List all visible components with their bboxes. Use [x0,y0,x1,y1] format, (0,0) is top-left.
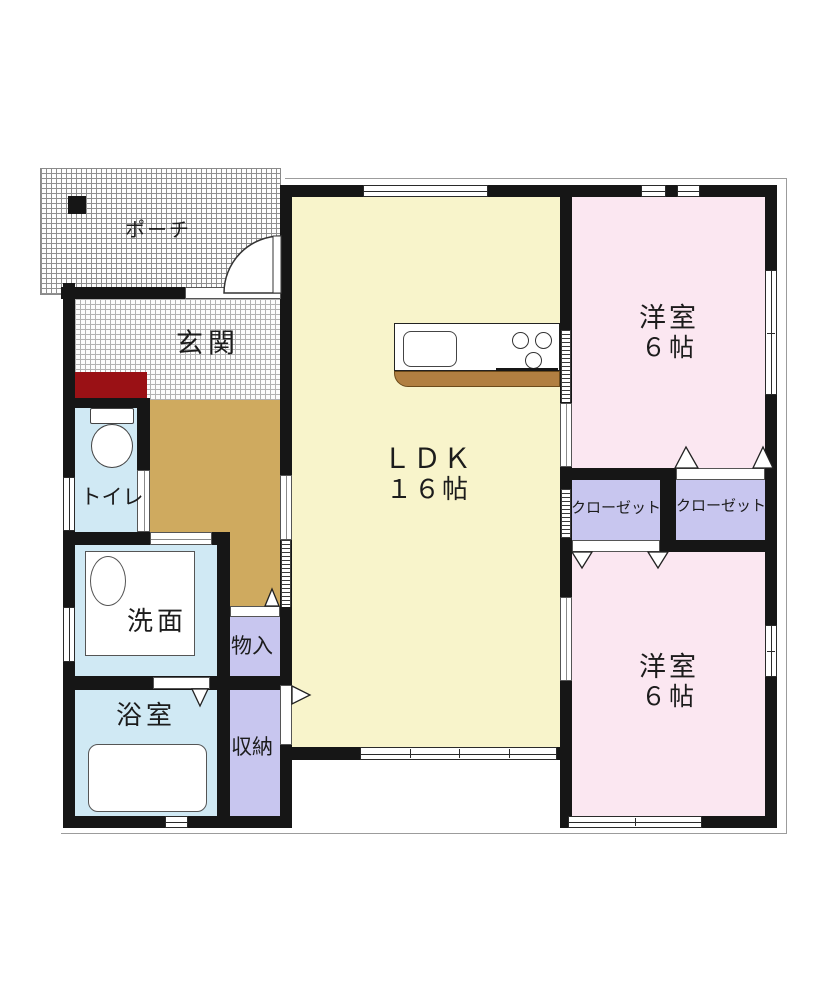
window-toilet-left [63,477,75,531]
label-bedroom-top-size: ６帖 [639,334,699,363]
door-bathroom [153,677,210,689]
wall-washroom-right [217,532,230,690]
label-ldk-name: ＬＤＫ [383,443,473,475]
window-bedroom-bottom-south [568,816,702,828]
label-bedroom-top: 洋室 ６帖 [639,303,699,363]
wall-top [280,185,777,197]
shoe-cabinet [75,372,147,398]
label-bedroom-bottom: 洋室 ６帖 [639,652,699,712]
label-closet-left: クローゼット [571,499,661,516]
label-bedroom-top-name: 洋室 [639,303,699,334]
bathtub [88,744,207,812]
entrance-threshold [185,287,281,299]
door-rail-closet-left [561,489,571,538]
door-ldk-bedroom-bottom [560,597,572,681]
window-bedroom-top-right [765,270,777,395]
wall-porch-genkan [61,287,185,299]
door-storage-small [230,606,280,617]
label-toilet: トイレ [81,486,144,510]
eave-line-bottom [61,833,787,834]
kitchen-sink [403,331,457,367]
toilet-tank [90,408,134,424]
kitchen-counter-wood [394,371,560,387]
label-porch: ポーチ [125,220,191,243]
label-storage-tall: 収納 [231,736,273,760]
door-closet-right [676,468,765,480]
label-washroom: 洗面 [127,607,187,637]
door-rail-bedroom-top [561,330,571,402]
eave-line-right [786,178,787,834]
stove-burner-2 [535,332,552,349]
window-ldk-top [363,185,488,197]
hallway-lower [230,532,280,606]
label-closet-right: クローゼット [676,497,766,514]
window-bedroom-bottom-right [765,625,777,677]
stove-burner-1 [512,332,529,349]
wall-bathroom-right [217,690,230,816]
floor-plan: ポーチ 玄関 トイレ 洗面 浴室 物入 収納 ＬＤＫ １６帖 洋室 ６帖 洋室 … [0,0,825,1000]
eave-line-top [285,178,786,179]
label-bedroom-bottom-size: ６帖 [639,683,699,712]
stove-burner-3 [525,352,542,369]
label-ldk: ＬＤＫ １６帖 [383,443,473,505]
wall-closet-bottom [660,540,777,552]
label-storage-small: 物入 [231,635,273,659]
wall-closet-top [560,468,676,480]
toilet-bowl [91,424,133,468]
label-ldk-size: １６帖 [383,475,473,505]
porch-post [68,196,86,214]
window-ldk-south-sliding [360,747,557,760]
window-bedroom-top-2 [677,185,700,197]
hallway-upper [150,400,280,532]
window-bathroom-south [165,816,188,828]
label-genkan: 玄関 [176,328,240,359]
door-storage-tall-ldk [280,685,292,745]
label-bathroom: 浴室 [116,701,176,731]
door-ldk-bedroom-top [560,403,572,467]
label-bedroom-bottom-name: 洋室 [639,652,699,683]
wash-basin [90,556,126,606]
door-washroom [150,532,212,545]
door-hall-ldk [280,475,292,540]
window-washroom-left [63,607,75,662]
door-rail-hall-ldk [281,540,291,607]
door-closet-left [572,540,660,552]
window-bedroom-top-1 [641,185,666,197]
wall-left-outer [63,283,75,828]
